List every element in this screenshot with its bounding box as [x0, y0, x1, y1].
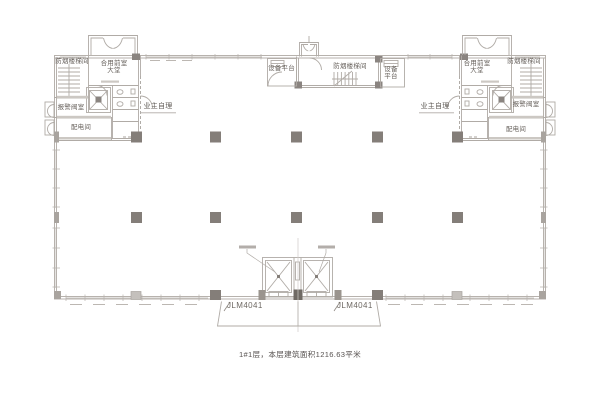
- room-label-power-distribution-left: 配电间: [64, 124, 98, 131]
- floor-area-caption: 1#1层，本层建筑面积1216.63平米: [0, 349, 600, 360]
- room-label-shared-front-room-right: 合用前室: [464, 60, 491, 67]
- door-code-label-right: JLM4041: [337, 302, 373, 311]
- room-label-smoke-staircase-right: 防烟楼梯间: [505, 58, 543, 65]
- room-label-shared-front-room-left: 合用前室: [101, 60, 128, 67]
- middle-block-columns: [132, 54, 468, 89]
- room-label-equipment-platform-left: 设备平台: [266, 65, 297, 72]
- left-core-block: [45, 36, 153, 141]
- door-code-label-left: JLM4041: [227, 302, 263, 311]
- room-label-equipment-platform-right: 设备平台: [384, 66, 398, 81]
- floorplan-page: 防烟楼梯间 合用前室大堂 报警阀室 配电间 业主自理 设备平台 防烟楼梯间 设备…: [0, 0, 600, 400]
- room-label-alarm-valve-left: 报警阀室: [53, 104, 89, 111]
- room-label-power-distribution-right: 配电间: [499, 126, 533, 133]
- right-core-block: [448, 36, 556, 141]
- right-elevator-core-dot: [499, 97, 505, 103]
- room-label-lobby-right: 合用前室大堂: [458, 60, 496, 74]
- room-label-alarm-valve-right: 报警阀室: [508, 101, 544, 108]
- elevator-spec-tags: [239, 246, 335, 249]
- window-symbols: [53, 54, 548, 301]
- room-label-smoke-staircase-left: 防烟楼梯间: [53, 58, 91, 65]
- room-label-lobby-hall-right: 大堂: [470, 67, 483, 74]
- room-label-smoke-staircase-middle: 防烟楼梯间: [331, 63, 369, 70]
- middle-stair-block: [297, 36, 381, 88]
- outer-walls: [54, 56, 546, 300]
- zone-label-owner-self-managed-right: 业主自理: [418, 103, 452, 111]
- room-label-lobby-hall-left: 大堂: [107, 67, 120, 74]
- room-label-lobby-left: 合用前室大堂: [95, 60, 133, 74]
- structural-columns: [131, 132, 463, 301]
- elevator-crosshair-dots: [277, 275, 318, 278]
- left-elevator-core-dot: [96, 97, 102, 103]
- zone-label-owner-self-managed-left: 业主自理: [141, 103, 175, 111]
